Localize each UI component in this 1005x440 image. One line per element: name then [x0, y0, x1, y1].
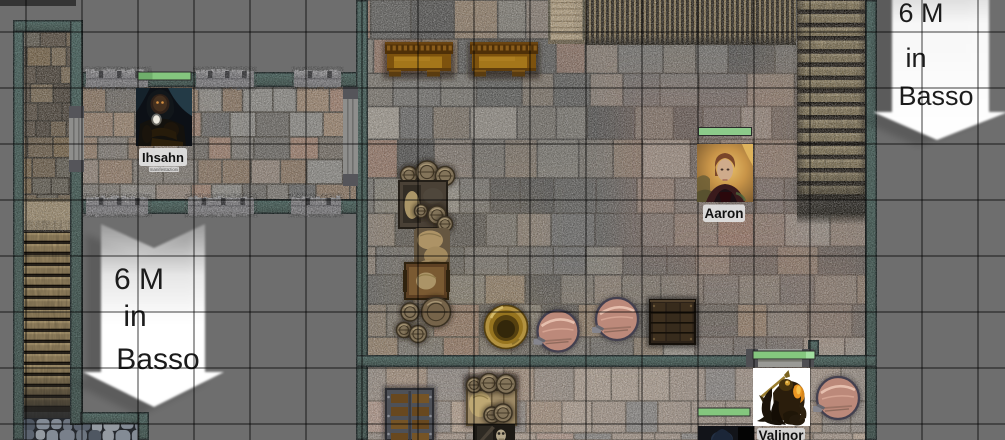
svg-text:Aaron: Aaron [704, 206, 743, 221]
svg-text:6 M: 6 M [898, 0, 943, 28]
svg-text:in: in [123, 300, 146, 333]
svg-text:Valinor: Valinor [758, 428, 804, 440]
svg-text:Basso: Basso [898, 81, 973, 111]
svg-text:6 M: 6 M [114, 263, 164, 296]
svg-text:Ihsahn: Ihsahn [142, 150, 184, 165]
svg-text:manifestazioni: manifestazioni [150, 167, 179, 172]
svg-text:in: in [905, 43, 926, 73]
svg-text:Basso: Basso [116, 343, 199, 376]
